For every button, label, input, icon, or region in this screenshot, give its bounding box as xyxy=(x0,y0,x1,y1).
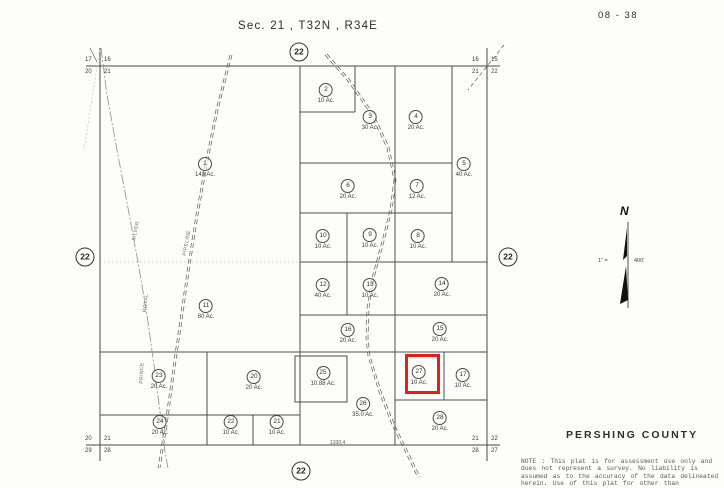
adjacent-section-marker[interactable]: 22 xyxy=(292,462,311,481)
parcel-2[interactable]: 210 Ac. xyxy=(318,83,335,104)
corner-section-number-bottom-right: 21 xyxy=(472,436,479,442)
corner-section-number-bottom-left: 29 xyxy=(85,448,92,454)
corner-section-number-top-right: 22 xyxy=(491,69,498,75)
corner-section-number-top-left: 17 xyxy=(85,57,92,63)
parcel-number: 25 xyxy=(316,366,330,380)
parcel-17[interactable]: 1710 Ac. xyxy=(455,368,472,389)
parcel-number: 20 xyxy=(247,370,261,384)
parcel-acreage: 10 Ac. xyxy=(223,430,240,436)
parcel-acreage: 40 Ac. xyxy=(315,293,332,299)
plat-map-page: 08 - 38 Sec. 21 , T32N , R34E PERSHING C… xyxy=(0,0,724,488)
county-name: PERSHING COUNTY xyxy=(566,429,698,441)
corner-section-number-top-right: 15 xyxy=(491,57,498,63)
scale-value: 400' xyxy=(634,258,644,264)
parcel-3[interactable]: 330 Ac. xyxy=(362,110,379,131)
parcel-number: 4 xyxy=(409,110,423,124)
parcel-acreage: 20 Ac. xyxy=(340,194,357,200)
parcel-number: 21 xyxy=(270,415,284,429)
parcel-number: 23 xyxy=(152,369,166,383)
parcel-1[interactable]: 1140 Ac. xyxy=(195,157,215,178)
parcel-23[interactable]: 2320 Ac. xyxy=(151,369,168,390)
corner-section-number-bottom-right: 27 xyxy=(491,448,498,454)
parcel-acreage: 10 Ac. xyxy=(362,293,379,299)
parcel-acreage: 20 Ac. xyxy=(246,385,263,391)
parcel-14[interactable]: 1420 Ac. xyxy=(434,277,451,298)
road-label-prince: PRINCE xyxy=(139,362,146,383)
adjacent-section-marker[interactable]: 22 xyxy=(76,248,95,267)
parcel-5[interactable]: 540 Ac. xyxy=(456,157,473,178)
parcel-acreage: 10 Ac. xyxy=(269,430,286,436)
corner-section-number-top-left: 16 xyxy=(104,57,111,63)
parcel-9[interactable]: 910 Ac. xyxy=(362,228,379,249)
parcel-number: 11 xyxy=(199,299,213,313)
parcel-acreage: 12 Ac. xyxy=(409,194,426,200)
parcel-acreage: 20 Ac. xyxy=(151,384,168,390)
map-title: Sec. 21 , T32N , R34E xyxy=(238,20,378,32)
parcel-number: 13 xyxy=(363,278,377,292)
parcel-acreage: 20 Ac. xyxy=(408,125,425,131)
parcel-10[interactable]: 1010 Ac. xyxy=(315,229,332,250)
sheet-number: 08 - 38 xyxy=(598,10,638,21)
parcel-28[interactable]: 2820 Ac. xyxy=(432,411,449,432)
parcel-number: 17 xyxy=(456,368,470,382)
dimension-label: 1330.4 xyxy=(330,440,345,446)
road-centerline xyxy=(101,48,168,468)
parcel-27[interactable]: 2710 Ac. xyxy=(411,365,428,386)
parcel-number: 15 xyxy=(433,322,447,336)
north-label: N xyxy=(620,204,629,218)
corner-section-number-bottom-left: 28 xyxy=(104,448,111,454)
corner-section-number-top-right: 16 xyxy=(472,57,479,63)
parcel-number: 28 xyxy=(433,411,447,425)
corner-section-number-bottom-left: 21 xyxy=(104,436,111,442)
parcel-26[interactable]: 2635.0 Ac. xyxy=(352,397,374,418)
parcel-acreage: 20 Ac. xyxy=(432,337,449,343)
note-line: herein. Use of this plat for other than xyxy=(521,480,721,487)
parcel-number: 1 xyxy=(198,157,212,171)
parcel-number: 10 xyxy=(316,229,330,243)
parcel-number: 3 xyxy=(363,110,377,124)
corner-section-number-top-right: 21 xyxy=(472,69,479,75)
parcel-acreage: 80 Ac. xyxy=(198,314,215,320)
parcel-8[interactable]: 810 Ac. xyxy=(410,229,427,250)
pipeline-west xyxy=(158,55,232,468)
parcel-acreage: 20 Ac. xyxy=(434,292,451,298)
parcel-acreage: 140 Ac. xyxy=(195,172,215,178)
parcel-24[interactable]: 2420 Ac. xyxy=(152,415,169,436)
corner-section-number-top-left: 21 xyxy=(104,69,111,75)
parcel-11[interactable]: 1180 Ac. xyxy=(198,299,215,320)
north-arrow xyxy=(620,222,628,308)
parcel-acreage: 10 Ac. xyxy=(411,380,428,386)
parcel-12[interactable]: 1240 Ac. xyxy=(315,278,332,299)
parcel-number: 14 xyxy=(435,277,449,291)
parcel-7[interactable]: 712 Ac. xyxy=(409,179,426,200)
parcel-acreage: 10 Ac. xyxy=(318,98,335,104)
note-line: does not represent a survey. No liabilit… xyxy=(521,465,721,472)
parcel-number: 16 xyxy=(341,323,355,337)
parcel-number: 8 xyxy=(411,229,425,243)
note-line: assumed as to the accuracy of the data d… xyxy=(521,473,721,480)
parcel-number: 27 xyxy=(412,365,426,379)
corner-section-number-top-left: 20 xyxy=(85,69,92,75)
parcel-number: 6 xyxy=(341,179,355,193)
parcel-21[interactable]: 2110 Ac. xyxy=(269,415,286,436)
parcel-acreage: 20 Ac. xyxy=(432,426,449,432)
parcel-25[interactable]: 2510.88 Ac. xyxy=(310,366,335,387)
parcel-acreage: 10 Ac. xyxy=(315,244,332,250)
parcel-acreage: 10.88 Ac. xyxy=(310,381,335,387)
scale-text: 1" = xyxy=(598,258,608,264)
parcel-number: 7 xyxy=(410,179,424,193)
parcel-number: 26 xyxy=(356,397,370,411)
parcel-acreage: 20 Ac. xyxy=(340,338,357,344)
parcel-acreage: 35.0 Ac. xyxy=(352,412,374,418)
parcel-number: 9 xyxy=(363,228,377,242)
parcel-6[interactable]: 620 Ac. xyxy=(340,179,357,200)
parcel-acreage: 20 Ac. xyxy=(152,430,169,436)
parcel-4[interactable]: 420 Ac. xyxy=(408,110,425,131)
parcel-acreage: 10 Ac. xyxy=(455,383,472,389)
parcel-number: 2 xyxy=(319,83,333,97)
parcel-20[interactable]: 2020 Ac. xyxy=(246,370,263,391)
corner-section-number-bottom-left: 20 xyxy=(85,436,92,442)
parcel-15[interactable]: 1520 Ac. xyxy=(432,322,449,343)
parcel-acreage: 10 Ac. xyxy=(362,243,379,249)
parcel-number: 22 xyxy=(224,415,238,429)
corner-section-number-bottom-right: 22 xyxy=(491,436,498,442)
parcel-number: 12 xyxy=(316,278,330,292)
parcel-acreage: 40 Ac. xyxy=(456,172,473,178)
parcel-22[interactable]: 2210 Ac. xyxy=(223,415,240,436)
parcel-acreage: 10 Ac. xyxy=(410,244,427,250)
parcel-number: 24 xyxy=(153,415,167,429)
parcel-number: 5 xyxy=(457,157,471,171)
note-line: NOTE : This plat is for assessment use o… xyxy=(521,458,721,465)
parcel-16[interactable]: 1620 Ac. xyxy=(340,323,357,344)
assessment-note: NOTE : This plat is for assessment use o… xyxy=(521,458,721,487)
parcel-13[interactable]: 1310 Ac. xyxy=(362,278,379,299)
adjacent-section-marker[interactable]: 22 xyxy=(290,43,309,62)
corner-section-number-bottom-right: 28 xyxy=(472,448,479,454)
adjacent-section-marker[interactable]: 22 xyxy=(499,248,518,267)
parcel-acreage: 30 Ac. xyxy=(362,125,379,131)
